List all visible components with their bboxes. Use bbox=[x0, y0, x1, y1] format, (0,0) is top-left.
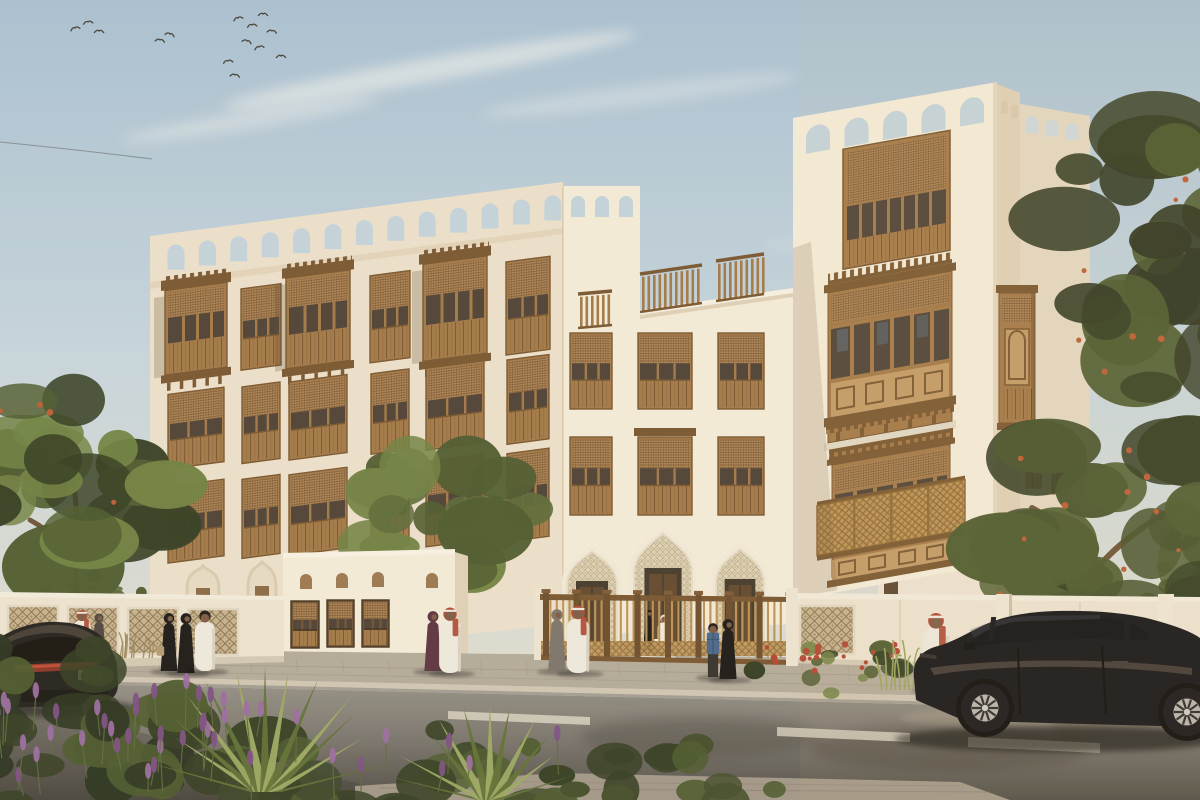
scene-canvas bbox=[0, 0, 1200, 800]
color-grade bbox=[0, 0, 1200, 800]
warm-right-overlay bbox=[800, 0, 1200, 800]
architectural-rendering bbox=[0, 0, 1200, 800]
